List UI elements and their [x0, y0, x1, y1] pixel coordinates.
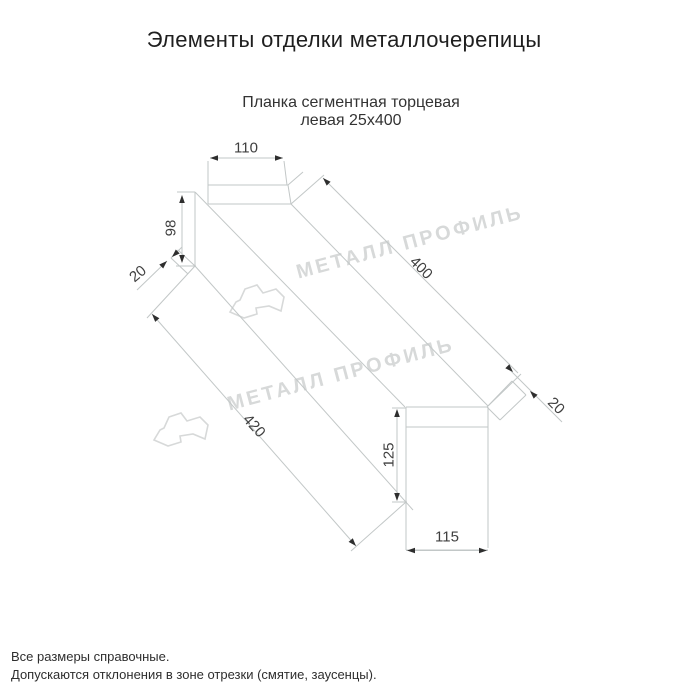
mp-logo-icon-2 [154, 413, 208, 446]
dimension-lines [137, 158, 562, 551]
footnote-reference-dims: Все размеры справочные. [11, 649, 169, 664]
dim-label-98: 98 [164, 220, 179, 237]
page-title: Элементы отделки металлочерепицы [147, 27, 542, 53]
dim-label-110: 110 [234, 141, 258, 156]
product-subtitle-line2: левая 25x400 [300, 112, 401, 130]
profile-outline [171, 172, 526, 550]
mp-logo-icon-1 [230, 285, 284, 318]
page: МЕТАЛЛ ПРОФИЛЬ МЕТАЛЛ ПРОФИЛЬ [0, 0, 700, 700]
dim-label-125: 125 [382, 442, 397, 467]
dimension-arrows [152, 155, 538, 553]
dim-label-115: 115 [435, 530, 459, 545]
footnote-cut-zone: Допускаются отклонения в зоне отрезки (с… [11, 667, 377, 682]
product-subtitle-line1: Планка сегментная торцевая [242, 94, 460, 112]
